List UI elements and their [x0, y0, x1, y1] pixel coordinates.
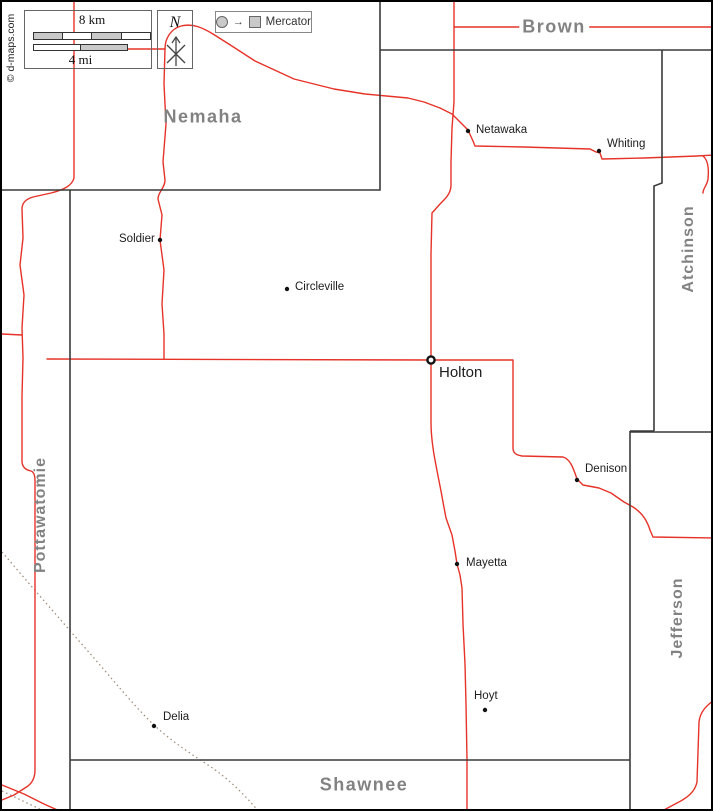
county-boundaries — [2, 2, 713, 811]
road-east-hook — [703, 156, 708, 193]
scale-mi-label: 4 mi — [33, 52, 128, 68]
scale-bar-km — [33, 32, 151, 40]
boundary-atchinson-west — [654, 50, 662, 431]
attribution-text: © d-maps.com — [5, 14, 17, 82]
town-label-denison: Denison — [585, 463, 627, 475]
county-label-atchinson: Atchinson — [680, 205, 698, 292]
scale-bar-mi — [33, 44, 128, 51]
town-dot-delia — [152, 724, 156, 728]
county-label-jefferson: Jefferson — [669, 577, 687, 658]
scale-segment — [33, 32, 63, 40]
town-markers — [152, 129, 601, 728]
road-holton-denison — [431, 360, 713, 538]
town-label-holton: Holton — [439, 364, 482, 381]
county-label-nemaha: Nemaha — [163, 107, 242, 128]
road-holton-north — [431, 2, 454, 360]
railroad-lines — [2, 552, 259, 811]
scale-segment — [92, 32, 122, 40]
road-southeast — [662, 700, 713, 811]
map-geometry — [2, 2, 713, 811]
road-network — [2, 2, 713, 811]
town-label-circleville: Circleville — [295, 281, 344, 293]
scale-segment — [63, 32, 93, 40]
town-label-whiting: Whiting — [607, 138, 645, 150]
north-label: N — [158, 14, 192, 32]
town-dot-mayetta — [455, 562, 459, 566]
compass-star-icon — [162, 34, 190, 68]
town-dot-hoyt — [483, 708, 487, 712]
road-west — [2, 2, 74, 800]
scale-segment — [33, 44, 81, 51]
projection-legend-box: → Mercator — [215, 11, 312, 33]
road-southwest-diagonal — [2, 785, 64, 811]
arrow-icon: → — [233, 17, 244, 28]
town-dot-netawaka — [466, 129, 470, 133]
scale-segment — [81, 44, 129, 51]
town-label-netawaka: Netawaka — [476, 124, 527, 136]
projected-map-icon — [249, 16, 261, 28]
town-dot-circleville — [285, 287, 289, 291]
town-label-mayetta: Mayetta — [466, 557, 507, 569]
county-label-brown: Brown — [519, 17, 589, 38]
county-map: 8 km 4 mi N → Mercator — [0, 0, 713, 811]
town-label-soldier: Soldier — [119, 233, 155, 245]
town-dot-soldier — [158, 238, 162, 242]
town-label-hoyt: Hoyt — [474, 690, 498, 702]
sphere-icon — [216, 16, 228, 28]
town-dot-whiting — [597, 149, 601, 153]
railroad-main — [2, 552, 259, 811]
county-label-pottawatomie: Pottawatomie — [32, 457, 50, 573]
scale-bar-box: 8 km 4 mi — [24, 10, 152, 69]
projection-name: Mercator — [266, 16, 311, 28]
city-ring-holton — [427, 356, 434, 363]
road-soldier — [158, 49, 166, 359]
scale-km-label: 8 km — [33, 12, 151, 28]
county-label-shawnee: Shawnee — [320, 775, 409, 796]
town-dot-denison — [575, 478, 579, 482]
town-label-delia: Delia — [163, 711, 189, 723]
road-holton-west — [47, 359, 431, 360]
scale-segment — [122, 32, 152, 40]
road-west-stub — [2, 334, 22, 335]
north-arrow-box: N — [157, 10, 193, 69]
road-holton-south — [431, 360, 467, 811]
